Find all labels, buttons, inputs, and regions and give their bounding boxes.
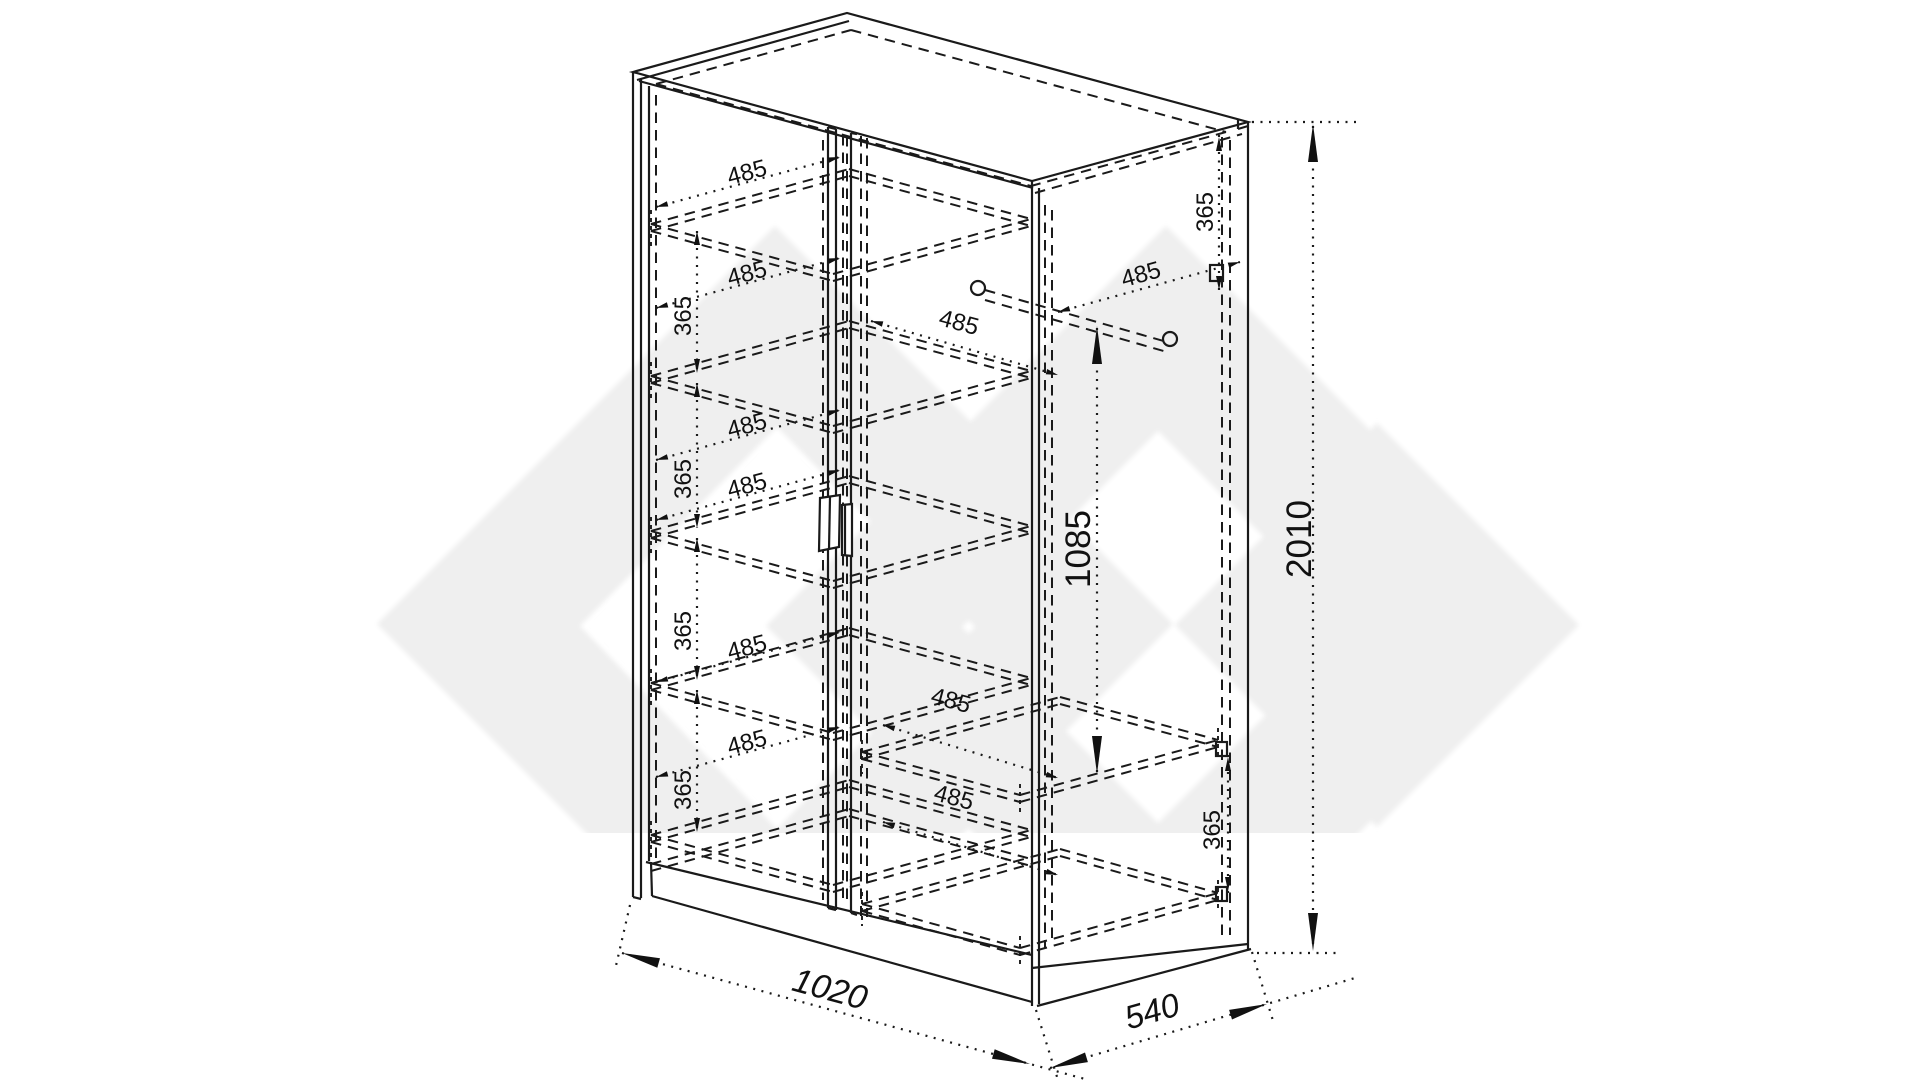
svg-text:365: 365 [670,770,697,810]
svg-text:365: 365 [1199,810,1226,850]
svg-text:1085: 1085 [1059,510,1098,588]
svg-text:365: 365 [1192,192,1219,232]
svg-text:365: 365 [670,611,697,651]
svg-text:2010: 2010 [1280,500,1319,578]
svg-text:365: 365 [670,459,697,499]
